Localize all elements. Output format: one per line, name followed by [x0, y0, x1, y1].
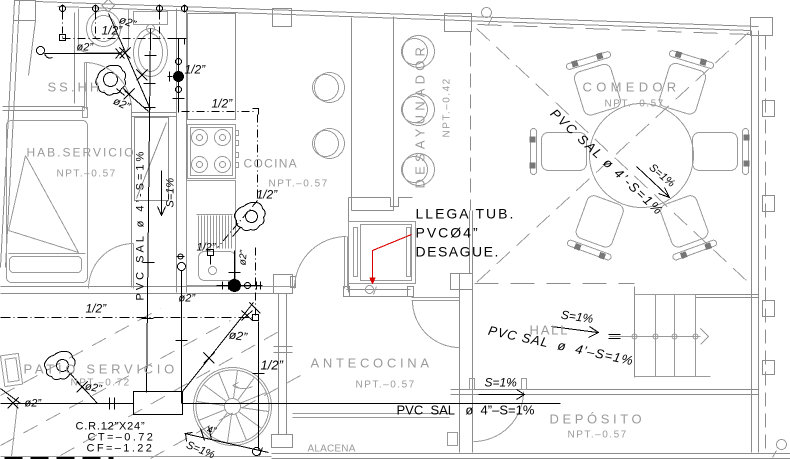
svg-text:CF=–1.22: CF=–1.22 — [87, 443, 155, 455]
svg-text:S=1%: S=1% — [485, 376, 518, 390]
svg-text:1/2”: 1/2” — [86, 302, 108, 316]
svg-text:1/2”: 1/2” — [197, 242, 217, 254]
svg-text:ALACENA: ALACENA — [308, 444, 356, 455]
svg-text:1/2”: 1/2” — [185, 63, 207, 77]
svg-text:ø2”: ø2” — [238, 249, 250, 266]
svg-text:HAB.SERVICIO: HAB.SERVICIO — [27, 146, 136, 160]
svg-text:S=1%: S=1% — [165, 178, 177, 208]
svg-text:ø2”: ø2” — [25, 398, 43, 410]
svg-text:DESAGUE.: DESAGUE. — [416, 244, 500, 260]
svg-text:LLEGA TUB.: LLEGA TUB. — [416, 206, 516, 222]
svg-text:ø2”: ø2” — [179, 293, 197, 305]
svg-text:ø2”: ø2” — [228, 328, 249, 345]
svg-text:PVC SAL ø 4’-S=1%: PVC SAL ø 4’-S=1% — [135, 149, 147, 301]
svg-text:NPT.–0.57: NPT.–0.57 — [568, 430, 628, 441]
svg-text:DEPÓSITO: DEPÓSITO — [550, 412, 646, 427]
svg-text:SS.HH.: SS.HH. — [48, 80, 109, 95]
svg-text:COMEDOR: COMEDOR — [583, 80, 681, 95]
svg-text:NPT.–0.57: NPT.–0.57 — [269, 179, 329, 190]
svg-text:PVC SAL ø 4”–S=1%: PVC SAL ø 4”–S=1% — [397, 403, 535, 418]
svg-text:1/2”: 1/2” — [257, 188, 279, 202]
svg-text:ANTECOCINA: ANTECOCINA — [311, 356, 433, 371]
svg-text:ø2”: ø2” — [77, 42, 95, 54]
svg-text:1/2”: 1/2” — [212, 97, 234, 111]
svg-text:NPT.–0.57: NPT.–0.57 — [57, 169, 117, 180]
svg-text:NPT.–0.42: NPT.–0.42 — [442, 77, 453, 137]
svg-text:NPT.–0.57: NPT.–0.57 — [605, 99, 665, 110]
svg-text:PVCØ4”: PVCØ4” — [416, 225, 480, 241]
svg-text:PATIO SERVICIO: PATIO SERVICIO — [24, 362, 178, 377]
svg-text:1/2”: 1/2” — [102, 24, 124, 38]
svg-text:1/2”: 1/2” — [261, 358, 284, 373]
svg-text:COCINA: COCINA — [244, 157, 298, 171]
svg-text:NPT.–0.57: NPT.–0.57 — [356, 380, 416, 391]
svg-text:DESAYUNADOR: DESAYUNADOR — [413, 43, 428, 189]
